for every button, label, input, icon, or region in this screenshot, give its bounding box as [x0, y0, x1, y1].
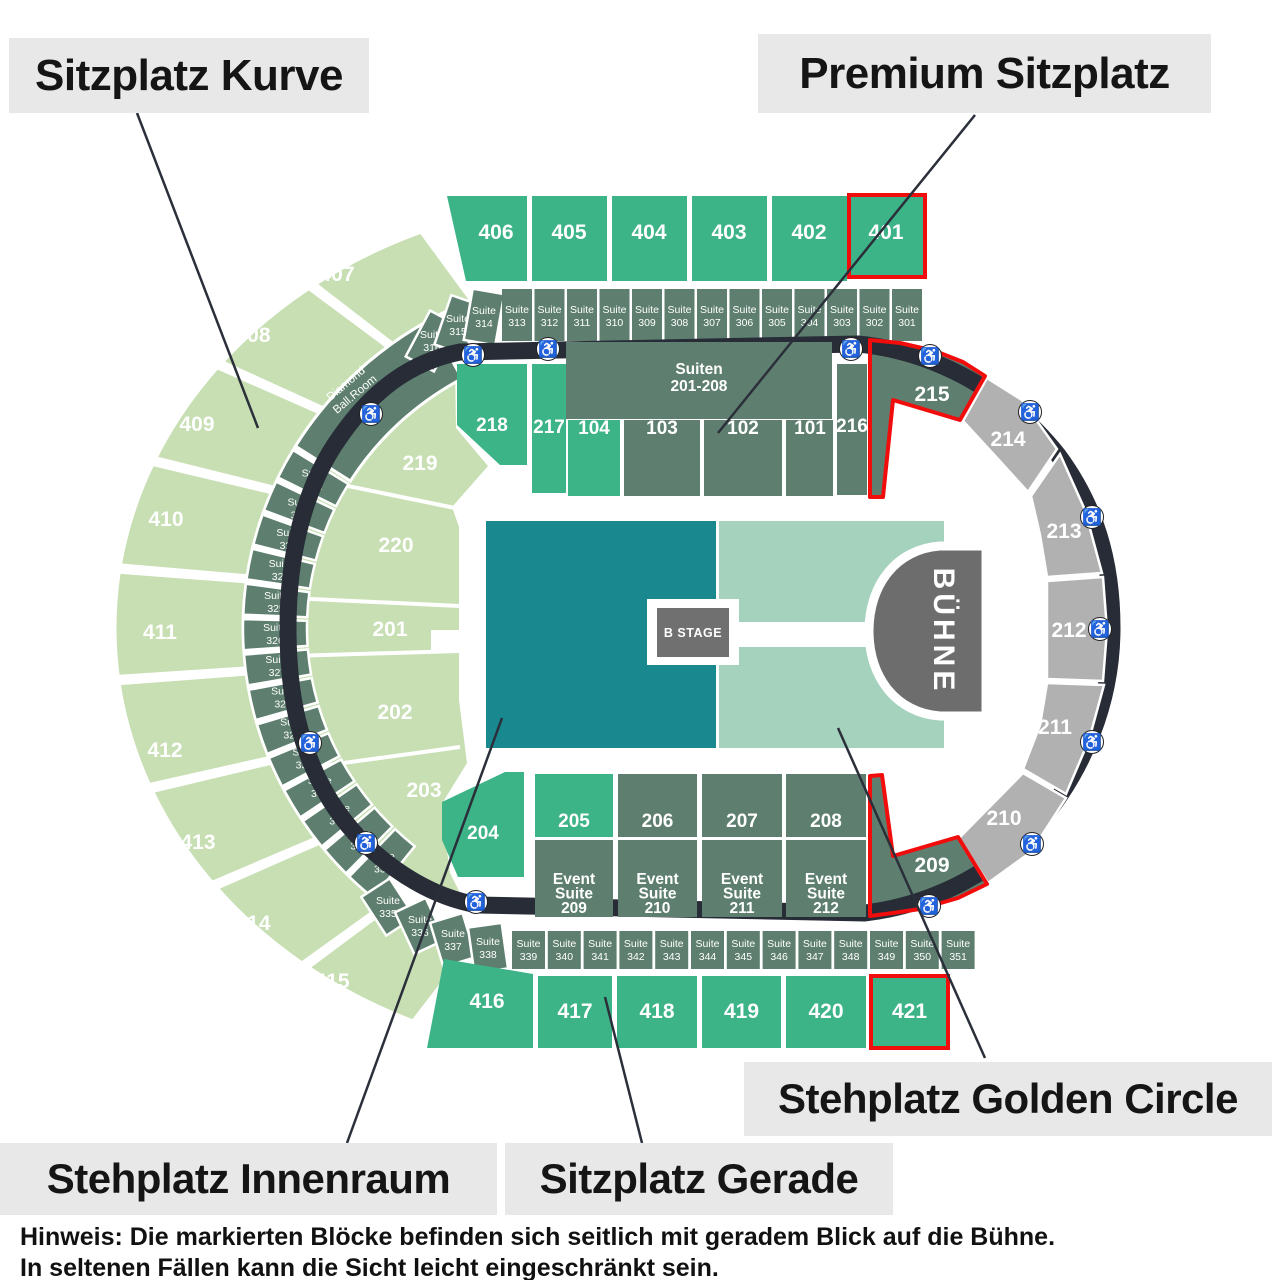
section-408-label: 408: [235, 324, 270, 347]
suite-343[interactable]: [655, 931, 688, 969]
section-409-label: 409: [179, 413, 214, 436]
suite-label: Suite338: [476, 936, 500, 961]
section-419-label: 419: [724, 1000, 759, 1023]
section-218-label: 218: [476, 415, 508, 436]
suite-label: Suite349: [875, 938, 899, 963]
legend-sitzplatz-kurve-label: Sitzplatz Kurve: [35, 51, 343, 101]
suite-label: Suite348: [839, 938, 863, 963]
suite-346[interactable]: [763, 931, 796, 969]
wheelchair-icon-glyph: ♿: [538, 340, 558, 359]
wheelchair-icon-glyph: ♿: [920, 347, 940, 366]
legend-sitzplatz-gerade: Sitzplatz Gerade: [505, 1143, 893, 1215]
suite-label: Suite314: [472, 305, 496, 330]
suite-label: Suite305: [765, 304, 789, 329]
suite-label: Suite344: [696, 938, 720, 963]
section-220-label: 220: [378, 534, 413, 557]
section-413-label: 413: [180, 831, 215, 854]
stage-label: BÜHNE: [927, 568, 960, 695]
section-215-label: 215: [914, 383, 949, 406]
wheelchair-icon-glyph: ♿: [463, 346, 483, 365]
section-418-label: 418: [639, 1000, 674, 1023]
legend-sitzplatz-kurve: Sitzplatz Kurve: [9, 38, 369, 113]
section-411[interactable]: [115, 572, 246, 676]
legend-premium-sitzplatz-label: Premium Sitzplatz: [799, 49, 1169, 99]
suite-label: Suite310: [603, 304, 627, 329]
section-406-label: 406: [478, 221, 513, 244]
legend-sitzplatz-gerade-label: Sitzplatz Gerade: [540, 1155, 859, 1203]
suite-label: Suite343: [660, 938, 684, 963]
suite-347[interactable]: [798, 931, 831, 969]
suite-label: Suite301: [895, 304, 919, 329]
legend-stehplatz-golden-circle-label: Stehplatz Golden Circle: [778, 1075, 1238, 1123]
section-203-label: 203: [406, 779, 441, 802]
map-note-line2: In seltenen Fällen kann die Sicht leicht…: [20, 1253, 1270, 1280]
section-208-label: 208: [810, 811, 842, 832]
event-suite-label: 212: [813, 900, 839, 917]
suite-label: Suite350: [910, 938, 934, 963]
suite-label: Suite340: [552, 938, 576, 963]
wheelchair-icon-glyph: ♿: [1082, 508, 1102, 527]
suite-label: Suite346: [767, 938, 791, 963]
suite-label: Suite341: [588, 938, 612, 963]
suite-349[interactable]: [870, 931, 903, 969]
section-102-label: 102: [727, 418, 759, 439]
suite-342[interactable]: [619, 931, 652, 969]
wheelchair-icon-glyph: ♿: [919, 897, 939, 916]
suite-label: Suite351: [946, 938, 970, 963]
wheelchair-icon-glyph: ♿: [356, 834, 376, 853]
event-suite-label: 209: [561, 900, 587, 917]
section-104-label: 104: [578, 418, 610, 439]
suite-339[interactable]: [512, 931, 545, 969]
wheelchair-icon-glyph: ♿: [1082, 733, 1102, 752]
suite-345[interactable]: [727, 931, 760, 969]
legend-pointer-line: [137, 113, 258, 428]
suite-341[interactable]: [584, 931, 617, 969]
section-213-label: 213: [1046, 520, 1081, 543]
section-103-label: 103: [646, 418, 678, 439]
suite-label: Suite347: [803, 938, 827, 963]
legend-stehplatz-innenraum: Stehplatz Innenraum: [0, 1143, 497, 1215]
section-404-label: 404: [631, 221, 666, 244]
map-note: Hinweis: Die markierten Blöcke befinden …: [20, 1222, 1270, 1280]
section-417-label: 417: [557, 1000, 592, 1023]
section-411-label: 411: [143, 621, 177, 644]
section-209-label: 209: [914, 854, 949, 877]
section-101-label: 101: [794, 418, 826, 439]
section-414-label: 414: [235, 912, 270, 935]
section-205-label: 205: [558, 811, 590, 832]
legend-premium-sitzplatz: Premium Sitzplatz: [758, 34, 1211, 113]
section-206-label: 206: [642, 811, 674, 832]
suite-label: Suite312: [538, 304, 562, 329]
legend-stehplatz-innenraum-label: Stehplatz Innenraum: [47, 1155, 451, 1203]
section-204-label: 204: [467, 823, 499, 844]
wheelchair-icon-glyph: ♿: [1020, 403, 1040, 422]
section-421-label: 421: [892, 1000, 927, 1023]
section-207-label: 207: [726, 811, 758, 832]
wheelchair-icon-glyph: ♿: [300, 734, 320, 753]
suite-label: Suite339: [517, 938, 541, 963]
section-405-label: 405: [551, 221, 586, 244]
suite-label: Suite302: [863, 304, 887, 329]
suite-350[interactable]: [906, 931, 939, 969]
wheelchair-icon-glyph: ♿: [841, 340, 861, 359]
section-216-label: 216: [836, 416, 868, 437]
suite-label: Suite303: [830, 304, 854, 329]
section-211-label: 211: [1038, 716, 1072, 739]
section-420-label: 420: [808, 1000, 843, 1023]
section-210-label: 210: [986, 807, 1021, 830]
section-212-label: 212: [1051, 619, 1086, 642]
section-214-label: 214: [990, 428, 1025, 451]
section-402-label: 402: [791, 221, 826, 244]
suite-label: Suite337: [441, 928, 465, 953]
suite-label: Suite313: [505, 304, 529, 329]
b-stage-label: B STAGE: [664, 626, 722, 640]
suite-344[interactable]: [691, 931, 724, 969]
wheelchair-icon-glyph: ♿: [1022, 835, 1042, 854]
section-217-label: 217: [533, 417, 565, 438]
suite-label: Suite307: [700, 304, 724, 329]
section-410-label: 410: [148, 508, 183, 531]
suite-340[interactable]: [548, 931, 581, 969]
section-201-label: 201: [372, 618, 407, 641]
section-403-label: 403: [711, 221, 746, 244]
suite-label: Suite309: [635, 304, 659, 329]
arena-seating-map-page: BÜHNEB STAGE2192202012022034074084094104…: [0, 0, 1280, 1280]
suite-label: Suite306: [733, 304, 757, 329]
suite-351[interactable]: [942, 931, 975, 969]
section-415-label: 415: [314, 970, 349, 993]
suite-label: Suite345: [731, 938, 755, 963]
suite-348[interactable]: [834, 931, 867, 969]
wheelchair-icon-glyph: ♿: [1090, 620, 1110, 639]
suite-label: Suite308: [668, 304, 692, 329]
suiten-block-label: 201-208: [671, 378, 728, 395]
wheelchair-icon-glyph: ♿: [361, 405, 381, 424]
legend-stehplatz-golden-circle: Stehplatz Golden Circle: [744, 1062, 1272, 1136]
section-202-label: 202: [377, 701, 412, 724]
section-407-label: 407: [319, 263, 354, 286]
event-suite-label: 211: [729, 900, 754, 917]
section-219-label: 219: [402, 452, 437, 475]
section-416-label: 416: [469, 990, 504, 1013]
event-suite-label: 210: [645, 900, 671, 917]
wheelchair-icon-glyph: ♿: [466, 893, 486, 912]
suiten-block-label: Suiten: [675, 361, 722, 378]
suite-label: Suite342: [624, 938, 648, 963]
map-note-line1: Hinweis: Die markierten Blöcke befinden …: [20, 1222, 1270, 1253]
section-412-label: 412: [147, 739, 182, 762]
